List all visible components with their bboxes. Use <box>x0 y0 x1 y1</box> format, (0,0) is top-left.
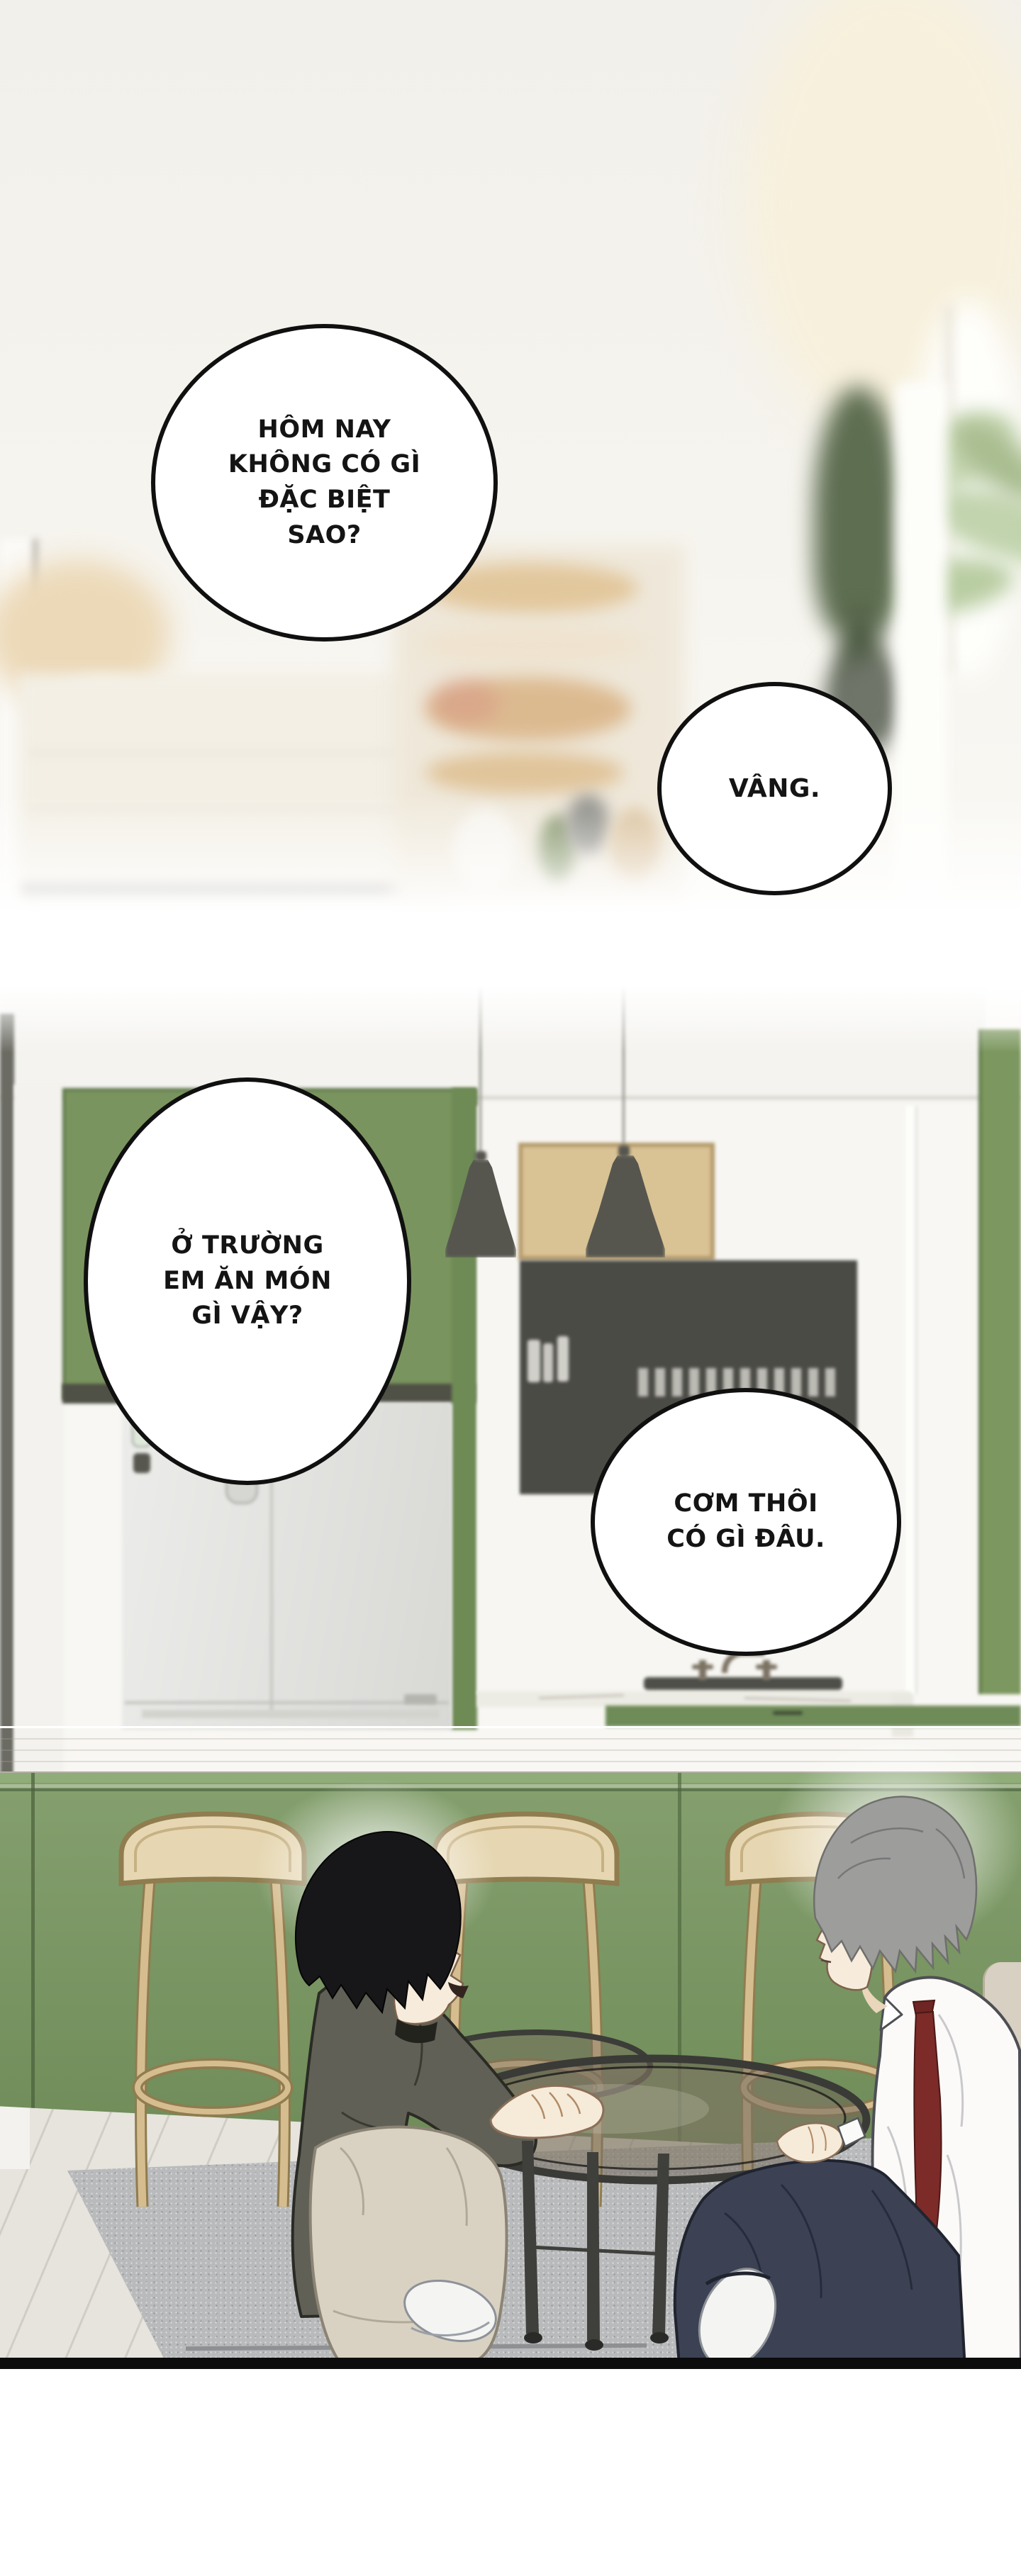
table-foot <box>650 2332 669 2343</box>
speech-bubble-4: CƠM THÔI CÓ GÌ ĐÂU. <box>591 1388 901 1656</box>
hair <box>814 1797 976 1971</box>
faucet-handle <box>699 1660 706 1680</box>
refrigerator-magnet <box>133 1453 150 1473</box>
speech-bubble-1-text: HÔM NAY KHÔNG CÓ GÌ ĐẶC BIỆT SAO? <box>228 413 420 554</box>
speech-bubble-3-text: Ở TRƯỜNG EM ĂN MÓN GÌ VẬY? <box>163 1228 332 1334</box>
shelf-bottle <box>528 1340 540 1382</box>
speech-bubble-2: VÂNG. <box>657 682 892 895</box>
faucet-base <box>644 1677 842 1690</box>
faucet-handle-bar <box>692 1664 713 1669</box>
speech-bubble-2-text: VÂNG. <box>729 771 820 807</box>
table-foot <box>524 2332 542 2343</box>
cabinet-handle <box>773 1711 803 1715</box>
lamp-cap <box>475 1151 486 1161</box>
pantry-items <box>431 681 498 724</box>
white-pillar-right <box>905 1106 915 1694</box>
speech-bubble-1: HÔM NAY KHÔNG CÓ GÌ ĐẶC BIỆT SAO? <box>151 324 498 642</box>
bar-groove <box>31 1773 35 2159</box>
speech-bubble-4-text: CƠM THÔI CÓ GÌ ĐÂU. <box>666 1486 825 1557</box>
pantry-items <box>425 751 624 794</box>
right-tall-green-cabinet <box>978 1029 1021 1694</box>
panel2-top-fade <box>0 985 1021 1053</box>
green-base-cabinet <box>606 1706 1021 1727</box>
speech-bubble-3: Ở TRƯỜNG EM ĂN MÓN GÌ VẬY? <box>84 1077 411 1485</box>
fridge-bottom-line <box>125 1701 449 1704</box>
panel-border-bottom <box>0 2358 1021 2369</box>
table-leg <box>652 2154 669 2334</box>
fridge-label <box>404 1694 437 1704</box>
table-leg <box>522 2141 539 2334</box>
panel-2: Ở TRƯỜNG EM ĂN MÓN GÌ VẬY? CƠM THÔI CÓ G… <box>0 985 1021 2369</box>
table-leg <box>587 2152 600 2341</box>
fridge-vent <box>142 1710 440 1718</box>
pantry-items <box>418 624 645 666</box>
table-foot <box>585 2339 603 2351</box>
dark-plant-cone <box>814 386 903 634</box>
lamp-cap <box>618 1146 630 1157</box>
panel-1: HÔM NAY KHÔNG CÓ GÌ ĐẶC BIỆT SAO? VÂNG. <box>0 0 1021 950</box>
shelf-bottle <box>543 1343 553 1382</box>
comic-page: HÔM NAY KHÔNG CÓ GÌ ĐẶC BIỆT SAO? VÂNG. <box>0 0 1021 2576</box>
shelf-bottle <box>557 1336 569 1382</box>
cabinet-line <box>28 751 425 754</box>
coffee-table-legs <box>397 2013 908 2369</box>
